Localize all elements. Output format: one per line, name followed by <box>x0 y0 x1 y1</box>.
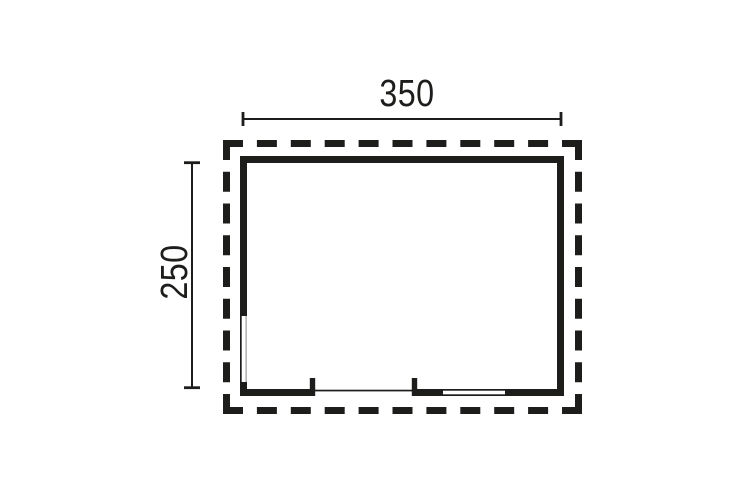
window-left-inner-line <box>246 316 247 382</box>
floor-plan-diagram: 350 250 <box>0 0 740 493</box>
wall-top <box>240 156 564 163</box>
width-dimension-label: 350 <box>379 73 434 115</box>
width-dimension-tick-left <box>242 112 245 126</box>
wall-right <box>557 156 564 396</box>
roof-outline <box>223 140 582 414</box>
width-dimension-line <box>243 118 561 120</box>
dimensions: 350 250 <box>154 73 563 390</box>
door-threshold-line <box>315 390 412 392</box>
door-jamb-left <box>310 378 315 396</box>
floor-plan-canvas: 350 250 <box>0 0 740 493</box>
wall-openings <box>240 316 505 396</box>
window-bottom-outer-line <box>443 389 505 391</box>
opening-linework <box>240 316 505 396</box>
door-jamb-right <box>412 378 417 396</box>
height-dimension-tick-top <box>184 161 200 164</box>
window-bottom-inner-line <box>443 394 505 396</box>
height-dimension-label: 250 <box>154 244 196 299</box>
walls <box>240 156 564 396</box>
width-dimension-tick-right <box>560 112 563 126</box>
window-left-outer-line <box>240 316 242 382</box>
height-dimension-tick-bottom <box>184 386 200 389</box>
